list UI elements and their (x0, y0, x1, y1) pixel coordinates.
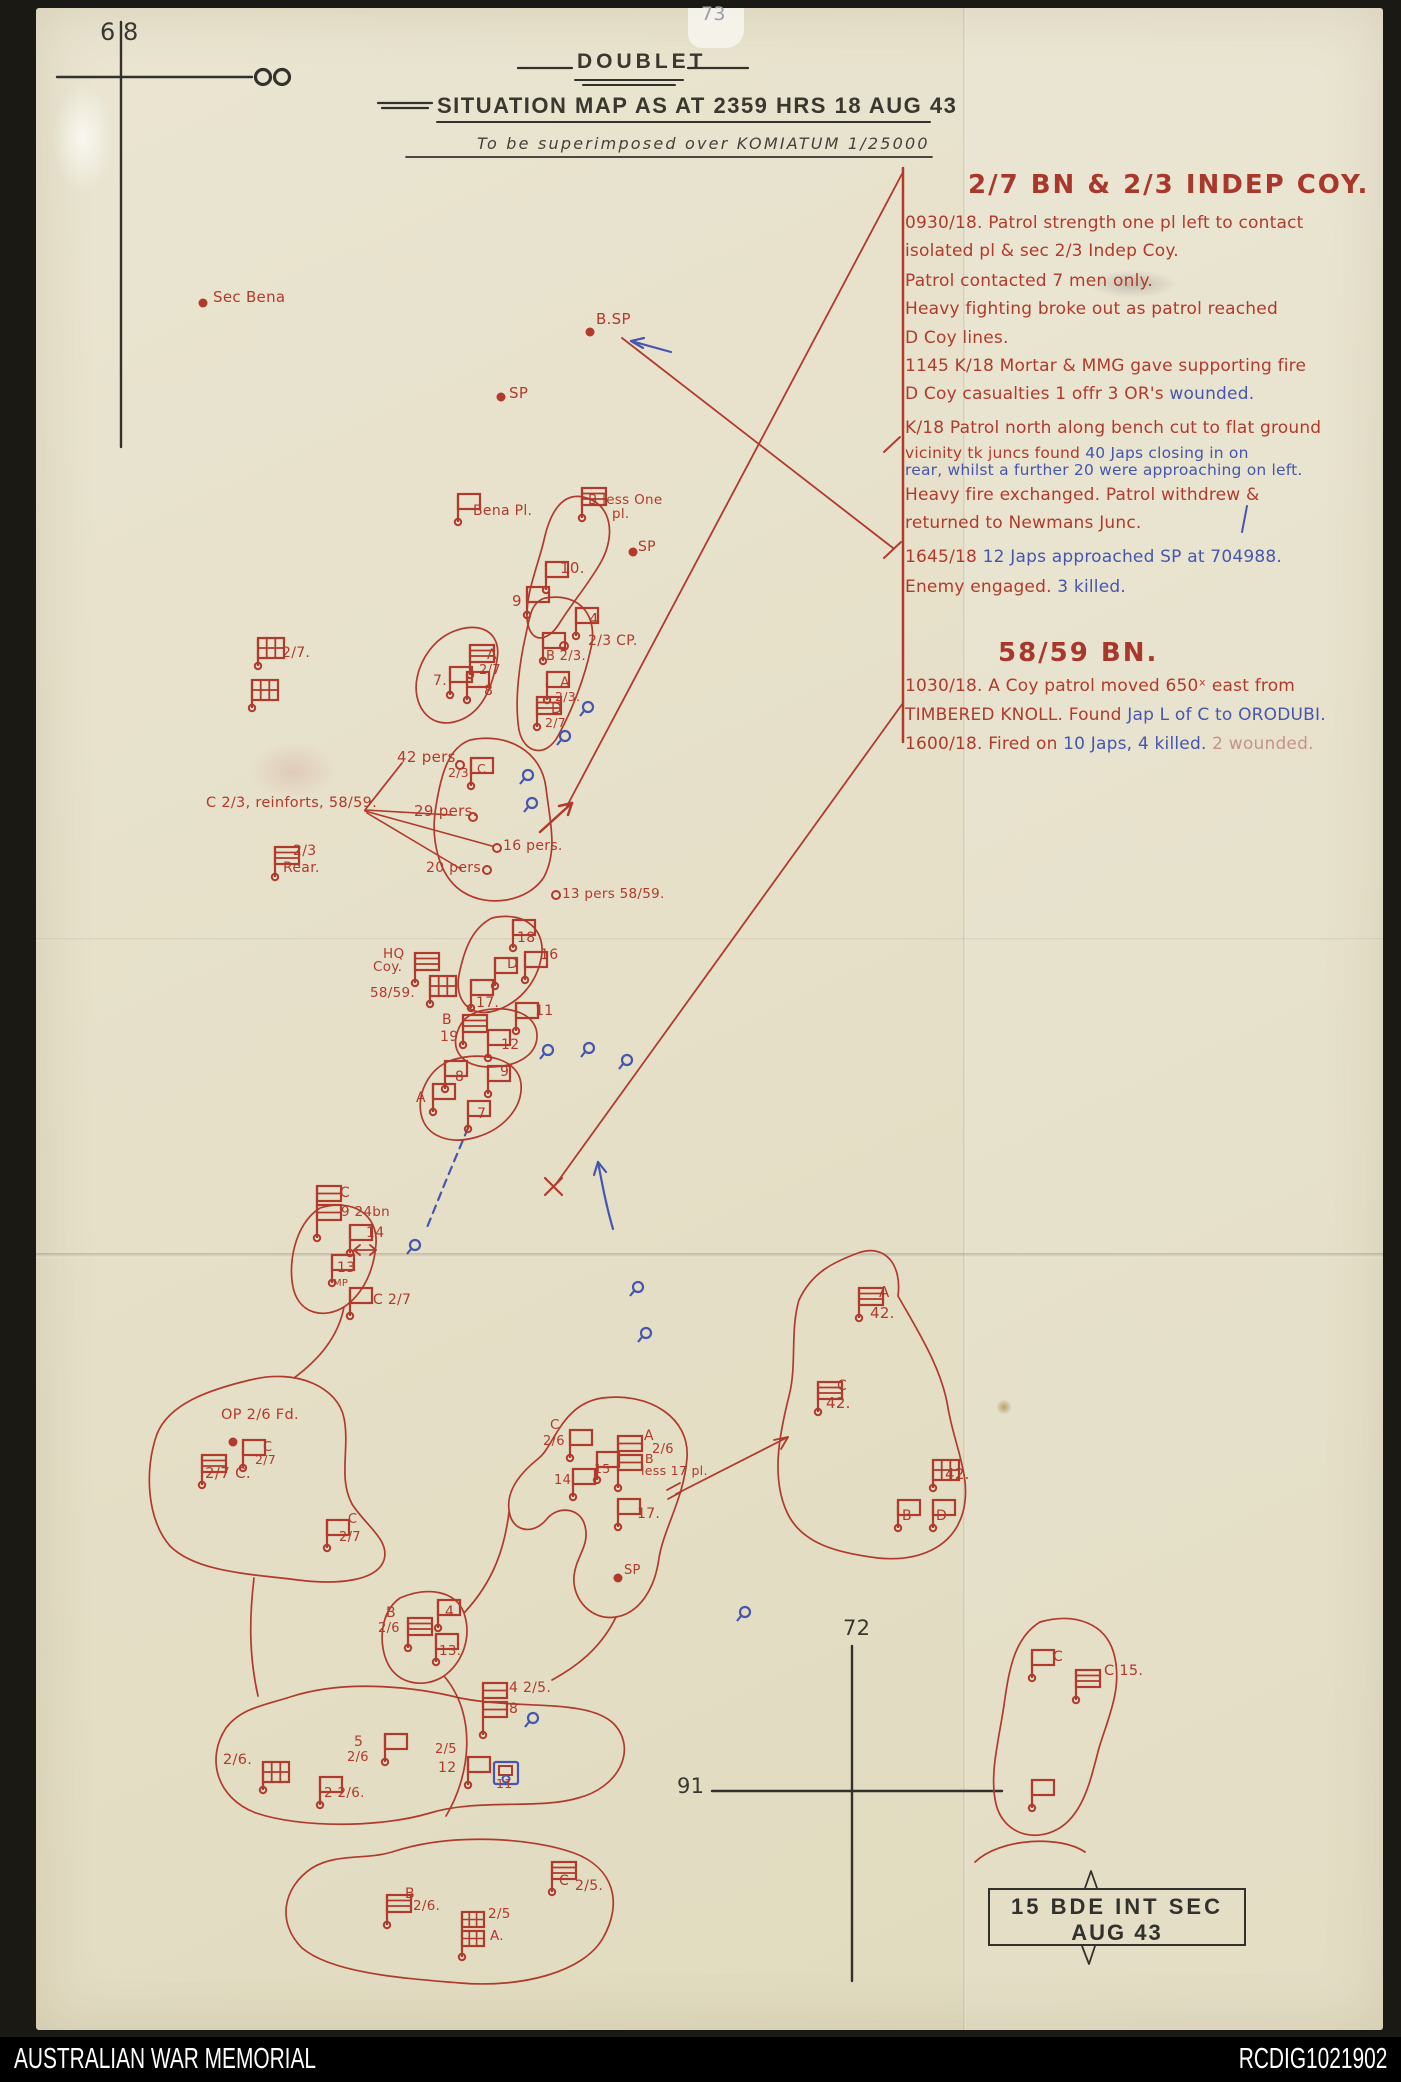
stamp-line1: 15 BDE INT SEC (990, 1894, 1244, 1920)
fold-crease (36, 938, 1383, 941)
archive-name: AUSTRALIAN WAR MEMORIAL (14, 2043, 316, 2076)
archive-footer-bar: AUSTRALIAN WAR MEMORIAL RCDIG1021902 (0, 2037, 1401, 2082)
fold-crease (36, 1253, 1383, 1258)
map-instruction: To be superimposed over KOMIATUM 1/25000 (477, 134, 930, 153)
archive-id: RCDIG1021902 (1238, 2043, 1387, 2076)
ink-smudge (248, 742, 338, 800)
map-subtitle: SITUATION MAP AS AT 2359 HRS 18 AUG 43 (437, 93, 957, 119)
paper-blemish (52, 82, 114, 194)
paper-stain (996, 1400, 1012, 1414)
map-title: DOUBLET (577, 50, 707, 74)
fold-crease (963, 8, 966, 2030)
stamp-line2: AUG 43 (990, 1920, 1244, 1946)
scanned-situation-map: DOUBLET SITUATION MAP AS AT 2359 HRS 18 … (0, 0, 1401, 2082)
int-sec-stamp: 15 BDE INT SEC AUG 43 (988, 1888, 1246, 1946)
paper-fold-tint (963, 8, 1383, 2030)
ink-smudge (1088, 270, 1178, 298)
paper-tear (688, 8, 744, 48)
